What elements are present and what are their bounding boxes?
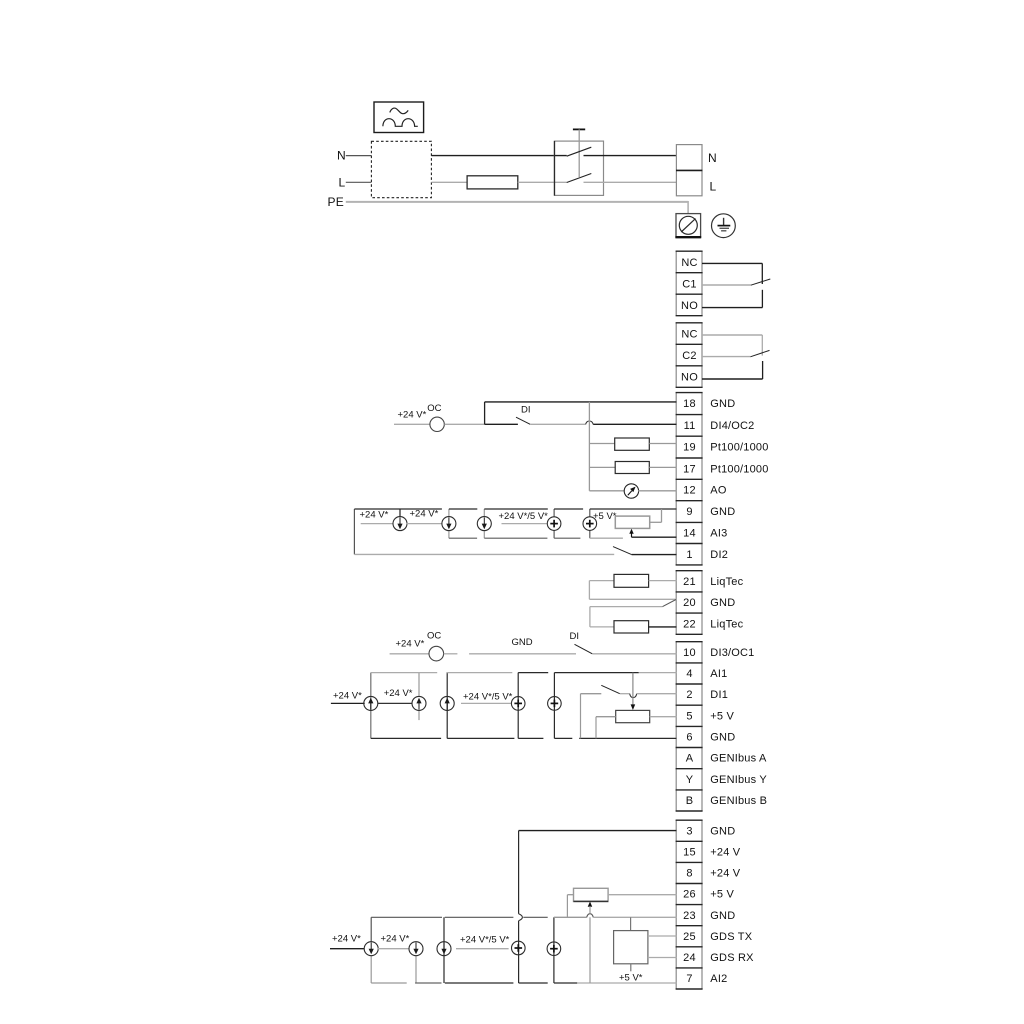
svg-text:AI1: AI1 xyxy=(710,668,727,680)
svg-text:+24 V*: +24 V* xyxy=(381,933,410,944)
svg-text:DI2: DI2 xyxy=(710,549,728,561)
svg-text:GND: GND xyxy=(710,597,735,609)
svg-text:+24 V*: +24 V* xyxy=(333,690,362,701)
svg-text:15: 15 xyxy=(683,846,696,858)
svg-text:2: 2 xyxy=(686,689,692,701)
svg-text:GND: GND xyxy=(710,910,735,922)
svg-text:23: 23 xyxy=(683,910,696,922)
svg-text:NO: NO xyxy=(681,300,698,312)
svg-text:PE: PE xyxy=(328,195,344,209)
svg-text:26: 26 xyxy=(683,889,696,901)
svg-text:1: 1 xyxy=(686,549,692,561)
svg-text:4: 4 xyxy=(686,668,692,680)
svg-text:12: 12 xyxy=(683,485,696,497)
svg-text:20: 20 xyxy=(683,597,696,609)
svg-text:DI3/OC1: DI3/OC1 xyxy=(710,647,754,659)
svg-text:DI1: DI1 xyxy=(710,689,728,701)
svg-text:L: L xyxy=(339,175,346,189)
svg-text:+24 V*: +24 V* xyxy=(396,638,425,649)
svg-text:+24 V*: +24 V* xyxy=(398,409,427,420)
svg-text:NC: NC xyxy=(681,329,697,341)
svg-text:14: 14 xyxy=(683,528,696,540)
svg-text:NC: NC xyxy=(681,257,697,269)
svg-text:19: 19 xyxy=(683,442,696,454)
svg-text:GENIbus Y: GENIbus Y xyxy=(710,774,767,786)
svg-text:GND: GND xyxy=(710,732,735,744)
svg-text:+24 V*/5 V*: +24 V*/5 V* xyxy=(463,692,513,703)
svg-text:+5 V: +5 V xyxy=(710,889,734,901)
svg-text:10: 10 xyxy=(683,647,696,659)
svg-text:L: L xyxy=(710,180,717,194)
svg-text:GND: GND xyxy=(710,506,735,518)
svg-text:GND: GND xyxy=(512,637,533,648)
svg-text:GDS RX: GDS RX xyxy=(710,952,754,964)
svg-text:GENIbus A: GENIbus A xyxy=(710,753,767,765)
svg-text:5: 5 xyxy=(686,710,692,722)
svg-text:7: 7 xyxy=(686,973,692,985)
svg-text:+24 V: +24 V xyxy=(710,868,741,880)
svg-text:+24 V*/5 V*: +24 V*/5 V* xyxy=(460,934,510,945)
svg-text:LiqTec: LiqTec xyxy=(710,576,743,588)
svg-text:+5 V: +5 V xyxy=(710,710,734,722)
svg-text:22: 22 xyxy=(683,618,696,630)
svg-text:B: B xyxy=(686,795,694,807)
svg-text:DI: DI xyxy=(521,404,531,415)
svg-text:AI2: AI2 xyxy=(710,973,727,985)
svg-text:Pt100/1000: Pt100/1000 xyxy=(710,442,768,454)
svg-text:AI3: AI3 xyxy=(710,528,727,540)
svg-text:GDS TX: GDS TX xyxy=(710,931,752,943)
svg-text:+24 V*: +24 V* xyxy=(360,510,389,521)
svg-text:3: 3 xyxy=(686,825,692,837)
svg-text:N: N xyxy=(708,151,717,165)
svg-text:17: 17 xyxy=(683,463,696,475)
svg-text:C2: C2 xyxy=(682,350,696,362)
svg-text:+5 V*: +5 V* xyxy=(619,973,643,984)
svg-text:+24 V*: +24 V* xyxy=(332,933,361,944)
svg-text:25: 25 xyxy=(683,931,696,943)
svg-text:24: 24 xyxy=(683,952,696,964)
svg-text:Pt100/1000: Pt100/1000 xyxy=(710,463,768,475)
svg-text:11: 11 xyxy=(684,420,696,432)
svg-text:NO: NO xyxy=(681,372,698,384)
svg-text:+5 V*: +5 V* xyxy=(593,511,617,522)
svg-text:OC: OC xyxy=(427,631,441,642)
svg-text:+24 V*/5 V*: +24 V*/5 V* xyxy=(499,511,549,522)
svg-text:GND: GND xyxy=(710,398,735,410)
svg-text:+24 V*: +24 V* xyxy=(384,688,413,699)
svg-text:LiqTec: LiqTec xyxy=(710,618,743,630)
svg-text:DI: DI xyxy=(570,631,580,642)
svg-text:+24 V*: +24 V* xyxy=(410,509,439,520)
svg-text:C1: C1 xyxy=(682,279,696,291)
svg-text:A: A xyxy=(686,753,694,765)
svg-text:AO: AO xyxy=(710,485,727,497)
svg-text:OC: OC xyxy=(427,403,441,414)
svg-text:GENIbus B: GENIbus B xyxy=(710,795,767,807)
svg-text:6: 6 xyxy=(686,732,692,744)
svg-text:9: 9 xyxy=(686,506,692,518)
svg-text:18: 18 xyxy=(683,398,696,410)
svg-text:Y: Y xyxy=(686,774,694,786)
svg-text:21: 21 xyxy=(683,576,696,588)
svg-text:DI4/OC2: DI4/OC2 xyxy=(710,420,754,432)
svg-text:8: 8 xyxy=(686,868,692,880)
svg-text:GND: GND xyxy=(710,825,735,837)
svg-text:N: N xyxy=(337,149,346,163)
svg-text:+24 V: +24 V xyxy=(710,846,741,858)
